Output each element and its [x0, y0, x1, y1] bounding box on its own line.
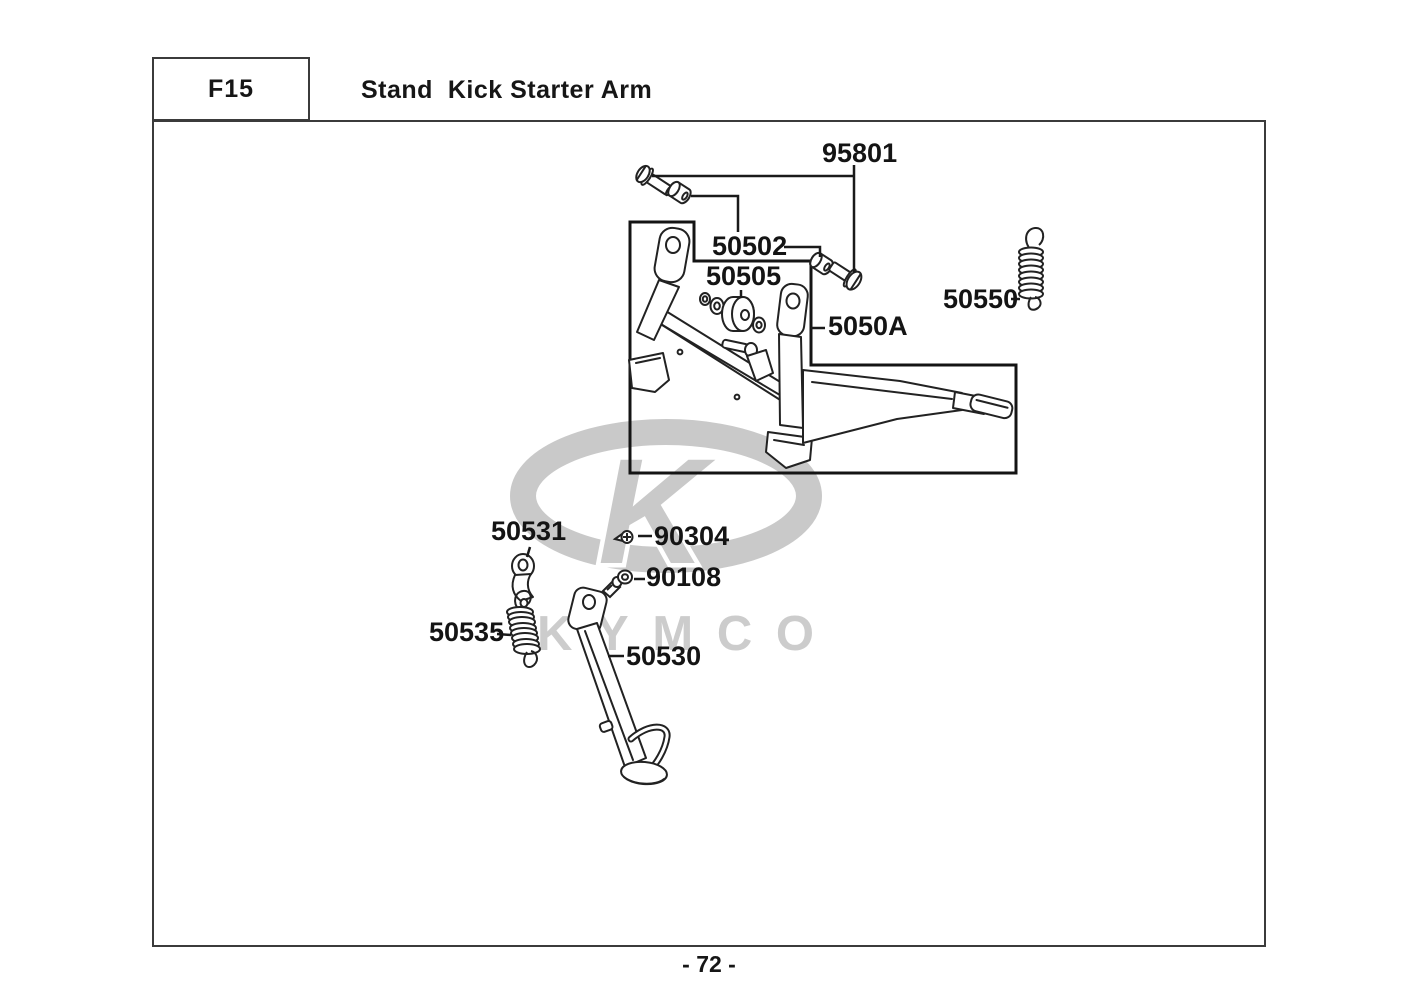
exploded-diagram: K KYMCO: [0, 0, 1415, 1000]
part-label-50535: 50535: [429, 619, 504, 646]
part-label-95801: 95801: [822, 140, 897, 167]
main-stand-spring-sketch: [1019, 228, 1043, 310]
parts-catalog-page: F15 Stand Kick Starter Arm K KYMCO: [0, 0, 1415, 1000]
part-label-90304: 90304: [654, 523, 729, 550]
part-label-90108: 90108: [646, 564, 721, 591]
part-label-50530: 50530: [626, 643, 701, 670]
collar-sketch-50502-left: [666, 180, 693, 205]
part-label-50550: 50550: [943, 286, 1018, 313]
page-number: - 72 -: [152, 951, 1266, 978]
part-label-50505: 50505: [706, 263, 781, 290]
part-label-50531: 50531: [491, 518, 566, 545]
part-label-5050A: 5050A: [828, 313, 908, 340]
part-label-50502: 50502: [712, 233, 787, 260]
roller-sketch-50505: [700, 293, 765, 333]
